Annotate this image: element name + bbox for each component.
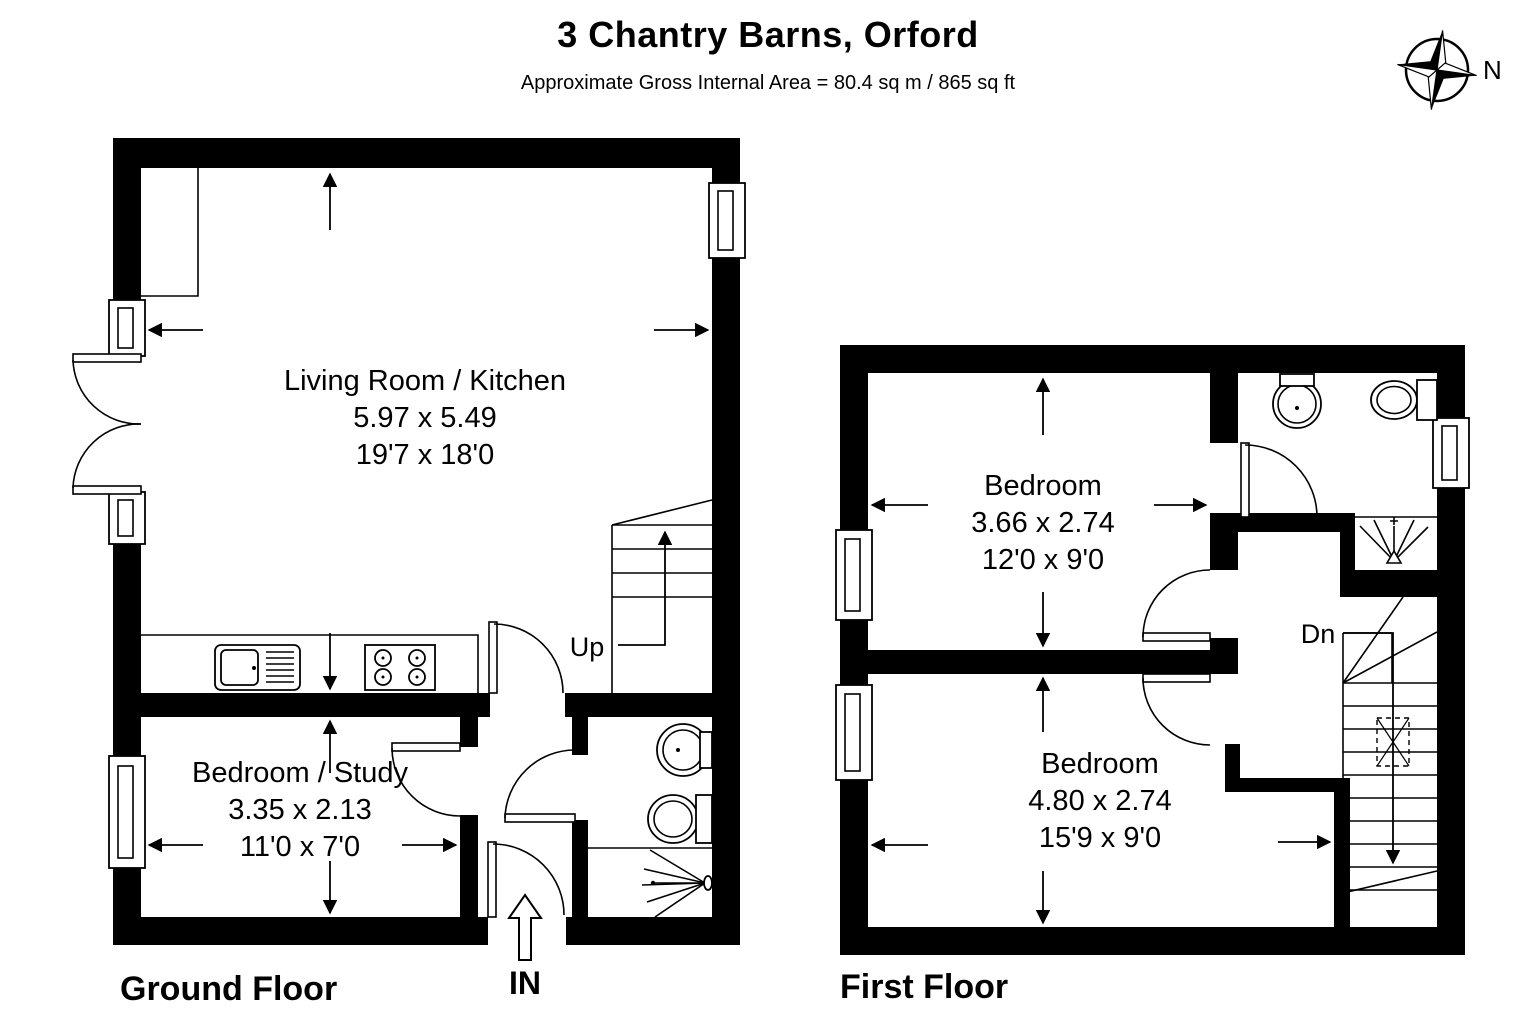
svg-text:Bedroom: Bedroom (1041, 748, 1159, 780)
room-label-living-kitchen: Living Room / Kitchen 5.97 x 5.49 19'7 x… (284, 365, 566, 471)
svg-text:4.80 x 2.74: 4.80 x 2.74 (1028, 785, 1172, 817)
shower-icon (1355, 517, 1437, 563)
window (109, 492, 145, 544)
page-title: 3 Chantry Barns, Orford (0, 14, 1536, 56)
compass-north-label: N (1483, 55, 1502, 85)
toilet-icon (648, 795, 712, 843)
entrance-label: IN (509, 965, 541, 1001)
ground-floor-openings (112, 183, 741, 946)
page-subtitle: Approximate Gross Internal Area = 80.4 s… (0, 72, 1536, 95)
svg-text:Living Room / Kitchen: Living Room / Kitchen (284, 365, 566, 397)
window (836, 530, 872, 620)
svg-text:3.66 x 2.74: 3.66 x 2.74 (971, 507, 1115, 539)
kitchen-sink-icon (215, 645, 300, 690)
door-bedroom-front (1143, 570, 1210, 641)
sink-icon (1273, 374, 1321, 428)
svg-text:19'7 x 18'0: 19'7 x 18'0 (356, 439, 494, 471)
first-floor-walls (840, 345, 1465, 955)
svg-text:12'0 x 9'0: 12'0 x 9'0 (982, 544, 1104, 576)
ground-floor-walls (113, 138, 740, 945)
toilet-icon (1371, 380, 1437, 420)
cupboard-outline (141, 168, 198, 296)
window (109, 756, 145, 868)
svg-text:Bedroom / Study: Bedroom / Study (192, 757, 408, 789)
first-floor-label: First Floor (840, 968, 1008, 1006)
room-label-bedroom-study: Bedroom / Study 3.35 x 2.13 11'0 x 7'0 (192, 757, 408, 863)
svg-text:11'0 x 7'0: 11'0 x 7'0 (240, 831, 360, 863)
door-living-hall (489, 622, 563, 693)
ground-floor-label: Ground Floor (120, 970, 337, 1008)
shower-icon (588, 848, 712, 917)
svg-text:3.35 x 2.13: 3.35 x 2.13 (228, 794, 372, 826)
door-bathroom (1241, 443, 1317, 517)
stairs-down-label: Dn (1301, 619, 1336, 649)
window (836, 685, 872, 780)
door-bedroom-back (1143, 674, 1210, 745)
stairs-up-label: Up (570, 632, 605, 662)
ground-floor-plan: Up (48, 128, 753, 1008)
window (1433, 418, 1469, 488)
compass-icon: N (1393, 24, 1518, 119)
window (109, 300, 145, 356)
hob-icon (365, 645, 435, 690)
room-label-bedroom-front: Bedroom 3.66 x 2.74 12'0 x 9'0 (971, 470, 1115, 576)
svg-text:15'9 x 9'0: 15'9 x 9'0 (1039, 822, 1161, 854)
floorplan-page: 3 Chantry Barns, Orford Approximate Gros… (0, 0, 1536, 1024)
stairs-up (612, 500, 712, 693)
door-bathroom (505, 750, 575, 822)
first-floor-openings (839, 418, 1466, 780)
window (709, 183, 745, 258)
svg-text:Bedroom: Bedroom (984, 470, 1102, 502)
first-floor-plan: Dn Bedroom 3.66 x 2.74 (828, 330, 1478, 1010)
sink-icon (657, 724, 712, 776)
svg-text:5.97 x 5.49: 5.97 x 5.49 (353, 402, 497, 434)
room-label-bedroom-back: Bedroom 4.80 x 2.74 15'9 x 9'0 (1028, 748, 1172, 854)
stairs-down (1343, 597, 1437, 893)
